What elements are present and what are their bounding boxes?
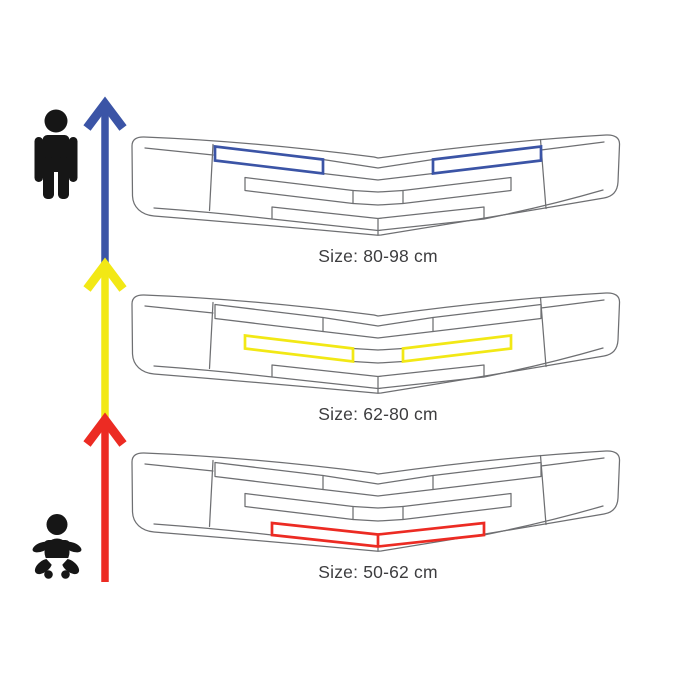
highlight-slot-left: [215, 147, 323, 174]
baby-foot-right: [61, 570, 70, 579]
highlight-slot-left: [245, 336, 353, 362]
person-icon-shapes: [35, 110, 78, 200]
waistband-drawing: [132, 135, 620, 235]
size-label-medium: Size: 62-80 cm: [128, 404, 628, 425]
waistband-size-large: [128, 128, 628, 253]
baby-foot-left: [44, 570, 53, 579]
waistband-size-medium: [128, 286, 628, 411]
growth-arrow-yellow: [87, 265, 123, 422]
person-arm-right: [69, 137, 78, 182]
highlight-slots-large: [215, 147, 541, 174]
baby-icon-shapes: [31, 514, 83, 579]
baby-icon: [28, 508, 84, 582]
person-leg-right: [58, 157, 69, 199]
size-label-large: Size: 80-98 cm: [128, 246, 628, 267]
highlight-slots-small: [272, 523, 484, 547]
person-head: [45, 110, 68, 133]
growth-arrow-blue: [87, 104, 123, 267]
waistband-drawing: [132, 293, 620, 393]
highlight-slot-right: [433, 147, 541, 174]
highlight-slots-medium: [245, 336, 511, 362]
person-icon: [30, 104, 82, 200]
growth-scale: [78, 95, 134, 587]
person-arm-left: [35, 137, 44, 182]
sizing-diagram: Size: 80-98 cm Size: 62-80 cm Size: 50-6…: [0, 0, 700, 700]
baby-head: [47, 514, 68, 535]
waistband-size-small: [128, 444, 628, 569]
person-leg-left: [43, 157, 54, 199]
waistband-drawing: [132, 451, 620, 551]
growth-arrow-red: [87, 420, 123, 582]
size-label-small: Size: 50-62 cm: [128, 562, 628, 583]
highlight-slot-right: [403, 336, 511, 362]
